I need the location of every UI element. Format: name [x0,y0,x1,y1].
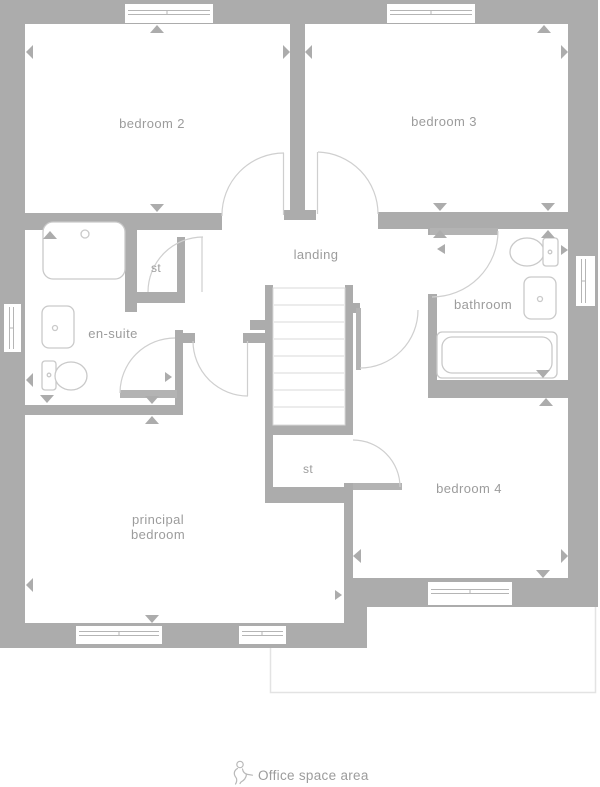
door-bathroom [430,228,498,297]
dimension-marker [353,549,361,563]
door-arc [353,440,400,487]
wall-segment [125,292,185,303]
door-arc [318,152,378,214]
wall-segment [428,380,568,398]
dimension-marker [305,45,312,59]
door-principal-bedroom [193,341,248,396]
door-arc [222,153,284,216]
floor-plan: bedroom 2 bedroom 3 landing st en-suite … [0,0,600,787]
dimension-marker [541,203,555,211]
window [387,4,476,24]
dimension-marker [437,244,445,254]
dimension-marker [536,570,550,578]
label-storage-bottom: st [303,462,313,476]
floor-plan-svg: bedroom 2 bedroom 3 landing st en-suite … [0,0,600,787]
office-area-outline [271,607,596,693]
door-ensuite [120,338,177,398]
window [428,582,513,606]
sink [524,277,556,319]
dimension-marker [433,203,447,211]
label-bedroom3: bedroom 3 [411,114,477,129]
dimension-marker [335,590,342,600]
window [4,304,22,353]
staircase [273,288,345,425]
dimension-marker [165,372,172,382]
toilet [510,238,558,266]
dimension-marker [539,398,553,406]
dimension-marker [26,45,33,59]
window [125,4,214,24]
wall-segment [250,320,265,330]
door-arc [432,231,498,297]
window [239,626,287,645]
wall-segment [428,294,437,384]
door-bedroom2 [222,153,284,216]
label-storage-top: st [151,261,161,275]
wall-segment [378,212,568,229]
window [576,256,596,307]
dimension-marker [145,396,159,404]
label-bathroom: bathroom [454,297,512,312]
dimension-marker [40,395,54,403]
label-bedroom4: bedroom 4 [436,481,502,496]
wall-segment [25,405,177,415]
wall-segment [175,333,195,343]
label-ensuite: en-suite [88,326,137,341]
dimension-marker [145,416,159,424]
toilet [42,361,87,390]
wall-segment [290,24,305,214]
door-leaf [356,308,361,370]
wall-segment [177,237,185,303]
door-storage-bottom [353,440,402,490]
label-bedroom2: bedroom 2 [119,116,185,131]
dimension-marker [26,373,33,387]
label-principal-bedroom-line2: bedroom [131,527,185,542]
dimension-marker [561,245,568,255]
label-principal-bedroom-line1: principal [132,512,184,527]
door-arc [360,310,418,368]
label-landing: landing [294,247,339,262]
sink [42,306,74,348]
door-bedroom4-lobby [356,308,418,370]
door-bedroom3 [318,152,379,214]
door-leaf [353,483,402,490]
door-arc [193,341,248,396]
dimension-marker [537,25,551,33]
wall-segment [345,285,353,435]
person-seated-icon [234,761,252,784]
footer-legend: Office space area [234,761,369,784]
wall-segment [265,487,353,503]
dimension-marker [561,45,568,59]
wall-segment [243,333,265,343]
door-arc [120,338,175,393]
dimension-marker [150,25,164,33]
dimension-marker [541,230,555,238]
wall-segment [265,285,273,503]
dimension-marker [150,204,164,212]
dimension-marker [26,578,33,592]
footer-label: Office space area [258,768,369,783]
dimension-marker [283,45,290,59]
wall-segment [0,623,367,648]
shower-tray [43,222,125,279]
wall-segment [0,0,598,24]
window [76,626,163,645]
wall-segment [284,210,316,220]
wall-segment [265,425,353,435]
dimension-marker [561,549,568,563]
dimension-marker [145,615,159,623]
wall-segment [344,483,353,583]
